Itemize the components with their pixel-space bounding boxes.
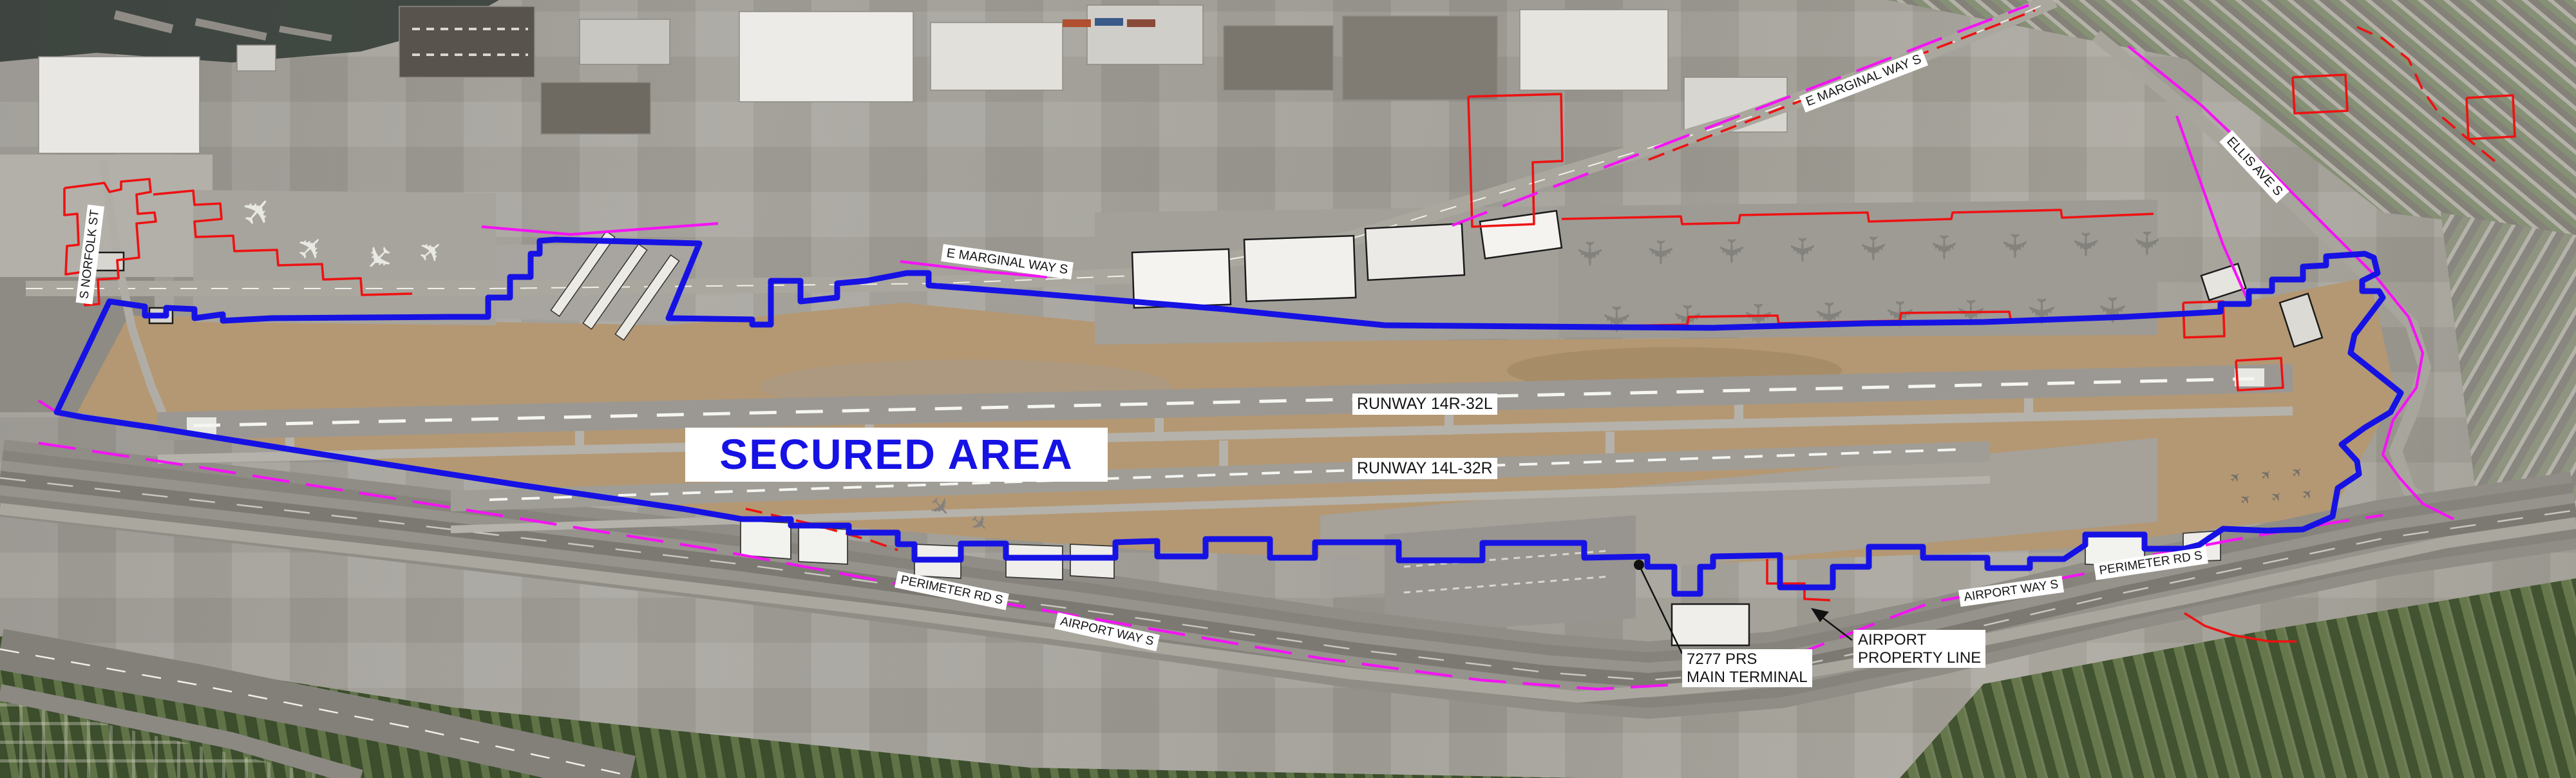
property-line-segment [482,223,718,234]
airplane-icon: ✈ [1924,233,1962,261]
container-stacks [1063,18,1155,27]
airplane-icon: ✈ [1994,232,2033,260]
airplane-icon: ✈ [2126,229,2165,258]
map-overlay-graphics: ✈ ✈ ✈ ✈ ✈ ✈ ✈ ✈ ✈ ✈ ✈ ✈ ✈ ✈ ✈ ✈ ✈ ✈ ✈ ✈ … [0,0,2576,778]
airplane-icon: ✈ [1782,236,1821,264]
secured-area-label: SECURED AREA [685,428,1108,482]
runway-14r-32l-label: RUNWAY 14R-32L [1352,394,1497,415]
red-lease-line [2357,27,2496,162]
airplane-icon: ✈ [2065,231,2104,259]
airport-property-line-callout-label: AIRPORT PROPERTY LINE [1853,630,1985,668]
main-terminal-callout-line2: MAIN TERMINAL [1687,669,1808,687]
airport-property-line-callout-line2: PROPERTY LINE [1858,649,1981,667]
main-terminal-callout-dot [1634,560,1644,570]
red-lease-line [1767,559,1830,600]
airplane-icon: ✈ [1640,238,1679,267]
red-lease-line [2293,75,2347,113]
airplane-icon: ✈ [1569,240,1608,268]
runway-threshold [2235,368,2264,386]
airport-aerial-map: ✈ ✈ ✈ ✈ ✈ ✈ ✈ ✈ ✈ ✈ ✈ ✈ ✈ ✈ ✈ ✈ ✈ ✈ ✈ ✈ … [0,0,2576,778]
airport-property-line-callout-line1: AIRPORT [1858,631,1981,649]
runway-14l-32r-label: RUNWAY 14L-32R [1352,458,1497,479]
main-terminal-building [1672,604,1749,645]
airplane-icon: ✈ [1853,234,1891,263]
piers [114,10,332,41]
main-terminal-callout-label: 7277 PRS MAIN TERMINAL [1682,649,1812,687]
airplane-icon: ✈ [1711,237,1750,265]
red-lease-line [2184,613,2297,641]
main-terminal-callout-line1: 7277 PRS [1687,650,1808,669]
red-lease-line [2467,95,2515,139]
